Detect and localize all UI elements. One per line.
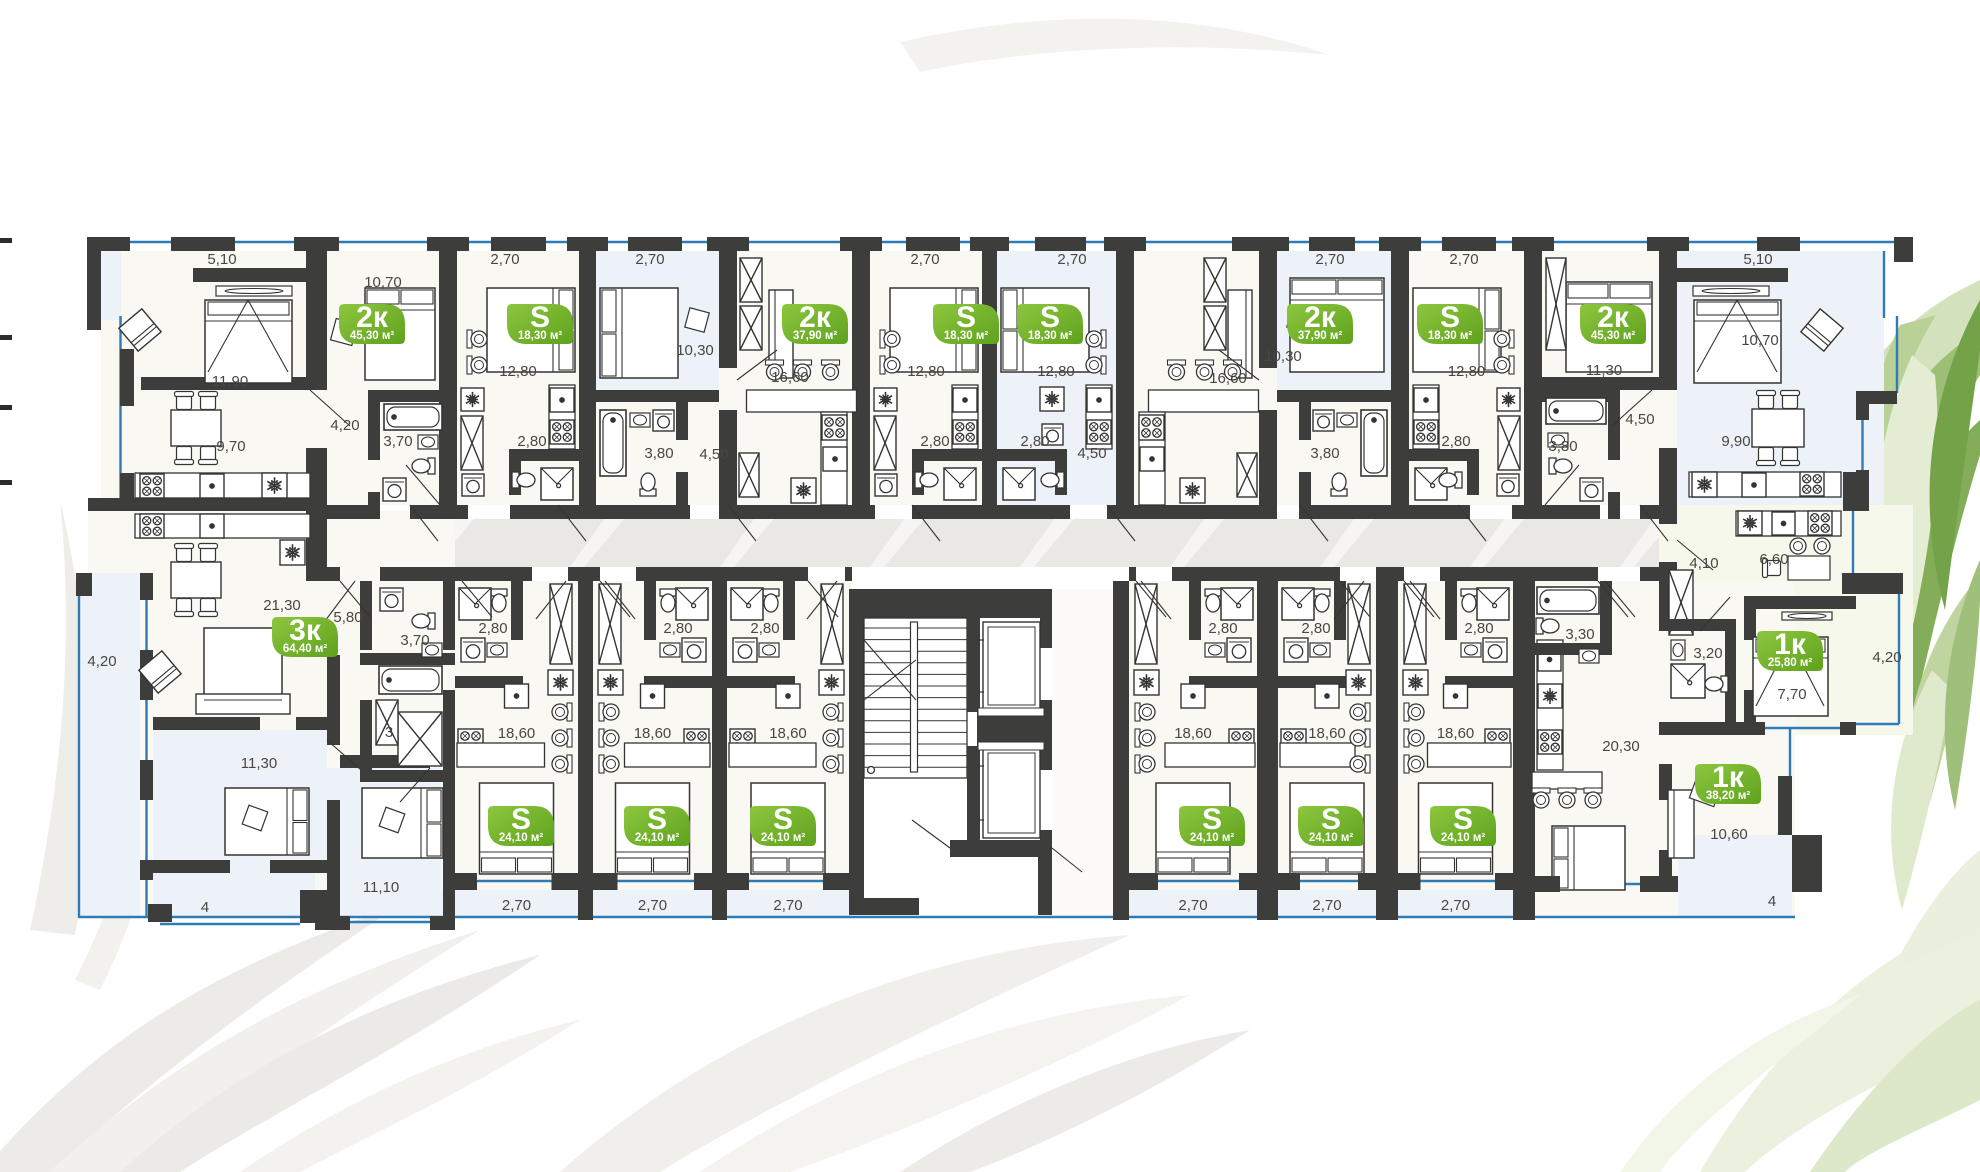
- svg-text:11,30: 11,30: [1586, 362, 1622, 379]
- svg-text:4,50: 4,50: [1077, 445, 1106, 462]
- svg-text:4: 4: [1768, 893, 1776, 910]
- svg-text:2,70: 2,70: [773, 897, 802, 914]
- svg-text:24,10 м²: 24,10 м²: [635, 832, 679, 844]
- svg-text:3,80: 3,80: [1310, 445, 1339, 462]
- svg-text:18,30 м²: 18,30 м²: [1428, 330, 1472, 342]
- svg-text:12,80: 12,80: [907, 363, 945, 380]
- svg-text:2,80: 2,80: [1020, 433, 1049, 450]
- svg-text:4,50: 4,50: [1625, 411, 1654, 428]
- svg-text:9,90: 9,90: [1721, 433, 1750, 450]
- svg-text:11,90: 11,90: [212, 373, 248, 390]
- svg-text:3,70: 3,70: [400, 632, 429, 649]
- svg-text:37,90 м²: 37,90 м²: [793, 330, 837, 342]
- svg-text:20,30: 20,30: [1602, 738, 1640, 755]
- svg-text:10,60: 10,60: [1710, 826, 1748, 843]
- svg-text:2,70: 2,70: [1315, 251, 1344, 268]
- svg-text:2,70: 2,70: [502, 897, 531, 914]
- svg-text:2,70: 2,70: [635, 251, 664, 268]
- svg-text:4,50: 4,50: [699, 446, 728, 463]
- svg-text:37,90 м²: 37,90 м²: [1298, 330, 1342, 342]
- svg-text:16,60: 16,60: [1209, 370, 1247, 387]
- svg-text:3,80: 3,80: [644, 445, 673, 462]
- svg-text:6,60: 6,60: [1759, 551, 1788, 568]
- svg-text:2,70: 2,70: [910, 251, 939, 268]
- svg-text:24,10 м²: 24,10 м²: [499, 832, 543, 844]
- svg-text:2,70: 2,70: [1057, 251, 1086, 268]
- svg-text:2,80: 2,80: [663, 620, 692, 637]
- svg-text:2,70: 2,70: [1441, 897, 1470, 914]
- svg-text:11,10: 11,10: [363, 879, 399, 896]
- svg-text:2,80: 2,80: [1441, 433, 1470, 450]
- svg-text:18,60: 18,60: [1174, 725, 1212, 742]
- svg-text:2,70: 2,70: [1312, 897, 1341, 914]
- svg-text:3,30: 3,30: [1565, 626, 1594, 643]
- svg-text:3,20: 3,20: [1693, 645, 1722, 662]
- svg-text:64,40 м²: 64,40 м²: [283, 643, 327, 655]
- svg-text:18,60: 18,60: [769, 725, 807, 742]
- svg-text:38,20 м²: 38,20 м²: [1706, 790, 1750, 802]
- svg-text:24,10 м²: 24,10 м²: [1441, 832, 1485, 844]
- svg-text:4: 4: [201, 899, 209, 916]
- svg-text:2,70: 2,70: [638, 897, 667, 914]
- svg-text:12,80: 12,80: [499, 363, 537, 380]
- svg-text:18,60: 18,60: [1437, 725, 1475, 742]
- svg-text:16,60: 16,60: [771, 369, 809, 386]
- svg-text:24,10 м²: 24,10 м²: [1309, 832, 1353, 844]
- svg-text:2,70: 2,70: [490, 251, 519, 268]
- svg-text:18,30 м²: 18,30 м²: [944, 330, 988, 342]
- svg-text:7,70: 7,70: [1777, 686, 1806, 703]
- svg-text:18,60: 18,60: [1308, 725, 1346, 742]
- svg-text:11,30: 11,30: [241, 755, 277, 772]
- svg-text:45,30 м²: 45,30 м²: [1591, 330, 1635, 342]
- svg-text:4,20: 4,20: [87, 653, 116, 670]
- svg-text:12,80: 12,80: [1448, 363, 1486, 380]
- svg-text:5,10: 5,10: [207, 251, 236, 268]
- svg-text:2,80: 2,80: [1208, 620, 1237, 637]
- svg-text:2,80: 2,80: [1301, 620, 1330, 637]
- svg-text:10,30: 10,30: [1264, 348, 1302, 365]
- svg-text:4,10: 4,10: [1689, 555, 1718, 572]
- svg-text:25,80 м²: 25,80 м²: [1768, 657, 1812, 669]
- svg-text:2,70: 2,70: [1178, 897, 1207, 914]
- svg-text:2,80: 2,80: [920, 433, 949, 450]
- svg-text:45,30 м²: 45,30 м²: [350, 330, 394, 342]
- svg-text:18,60: 18,60: [498, 725, 536, 742]
- svg-text:2,80: 2,80: [750, 620, 779, 637]
- svg-text:18,30 м²: 18,30 м²: [518, 330, 562, 342]
- svg-text:10,70: 10,70: [364, 274, 402, 291]
- svg-text:21,30: 21,30: [263, 597, 301, 614]
- svg-text:12,80: 12,80: [1037, 363, 1075, 380]
- svg-text:3,80: 3,80: [1548, 438, 1577, 455]
- svg-text:2,70: 2,70: [1449, 251, 1478, 268]
- svg-text:3: 3: [385, 724, 393, 741]
- svg-text:24,10 м²: 24,10 м²: [761, 832, 805, 844]
- svg-text:18,60: 18,60: [634, 725, 672, 742]
- svg-text:4,20: 4,20: [330, 417, 359, 434]
- svg-text:2,80: 2,80: [1464, 620, 1493, 637]
- svg-text:9,70: 9,70: [216, 438, 245, 455]
- svg-text:4,20: 4,20: [1872, 649, 1901, 666]
- svg-text:2,80: 2,80: [517, 433, 546, 450]
- svg-text:10,30: 10,30: [676, 342, 714, 359]
- svg-text:2,80: 2,80: [478, 620, 507, 637]
- svg-text:5,10: 5,10: [1743, 251, 1772, 268]
- svg-text:3,70: 3,70: [383, 433, 412, 450]
- svg-text:10,70: 10,70: [1741, 332, 1779, 349]
- svg-text:18,30 м²: 18,30 м²: [1028, 330, 1072, 342]
- svg-text:24,10 м²: 24,10 м²: [1190, 832, 1234, 844]
- svg-text:5,80: 5,80: [333, 609, 362, 626]
